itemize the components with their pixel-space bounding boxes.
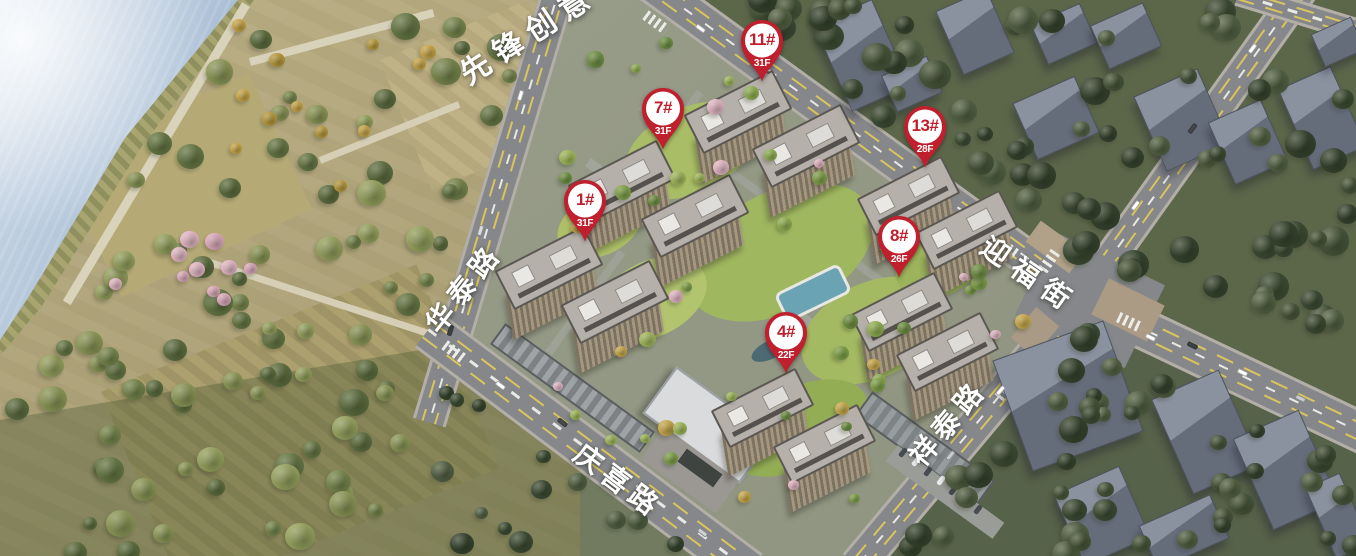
- building-floor-count: 26F: [876, 254, 922, 265]
- building-pin-7[interactable]: 7# 31F: [640, 86, 686, 152]
- pin-marker-icon: [876, 214, 922, 280]
- pin-marker-icon: [763, 310, 809, 376]
- building-number-label: 11#: [739, 30, 785, 50]
- building-pin-8[interactable]: 8# 26F: [876, 214, 922, 280]
- building-number-label: 1#: [562, 190, 608, 210]
- building-floor-count: 22F: [763, 350, 809, 361]
- building-floor-count: 28F: [902, 144, 948, 155]
- building-floor-count: 31F: [562, 218, 608, 229]
- pin-marker-icon: [562, 178, 608, 244]
- pin-marker-icon: [902, 104, 948, 170]
- building-number-label: 4#: [763, 322, 809, 342]
- building-pin-1[interactable]: 1# 31F: [562, 178, 608, 244]
- building-pins-layer: 1# 31F 4# 22F 7# 31F 8# 26F 11# 31F: [0, 0, 1356, 556]
- building-pin-13[interactable]: 13# 28F: [902, 104, 948, 170]
- pin-marker-icon: [739, 18, 785, 84]
- building-floor-count: 31F: [640, 126, 686, 137]
- building-number-label: 8#: [876, 226, 922, 246]
- site-plan-map: 先锋创意华泰路迎福街祥泰路庆喜路 1# 31F 4# 22F 7# 31F 8#…: [0, 0, 1356, 556]
- building-pin-11[interactable]: 11# 31F: [739, 18, 785, 84]
- building-floor-count: 31F: [739, 58, 785, 69]
- building-number-label: 7#: [640, 98, 686, 118]
- building-number-label: 13#: [902, 116, 948, 136]
- pin-marker-icon: [640, 86, 686, 152]
- building-pin-4[interactable]: 4# 22F: [763, 310, 809, 376]
